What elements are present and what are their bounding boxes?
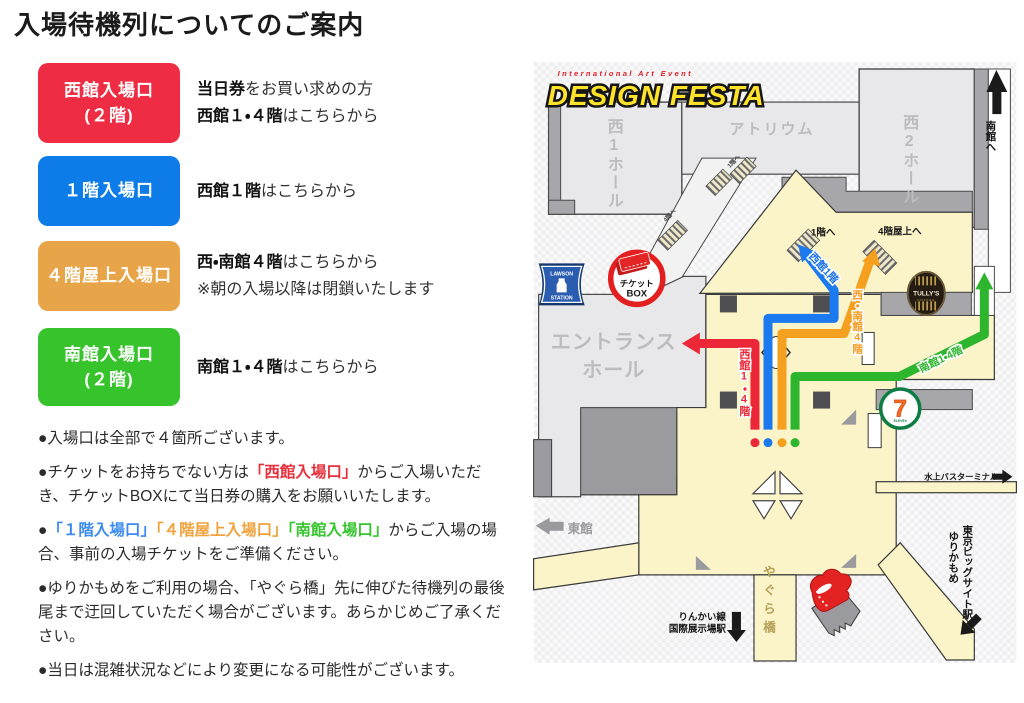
text-segment: 「南館入場口」 <box>288 522 389 539</box>
notes-list: ●入場口は全部で４箇所ございます。 ●チケットをお持ちでない方は「西館入場口」か… <box>38 427 508 683</box>
to-roof-label: 4階屋上へ <box>878 225 922 237</box>
text-segment: 西館１階 <box>197 183 261 200</box>
pillar <box>813 392 830 409</box>
note-item: ●当日は混雑状況などにより変更になる可能性がございます。 <box>38 659 508 683</box>
info-panel: 入場待機列についてのご案内 西館入場口 (２階) 当日券をお買い求めの方 西館１… <box>0 0 525 693</box>
entrance-row-1f: １階入場口 西館１階はこちらから <box>38 156 525 226</box>
rinkai-label-2: 国際展示場駅 <box>669 623 727 635</box>
yurikamome-label-1: ゆりかもめ <box>947 531 959 584</box>
door <box>862 332 874 364</box>
west1-hall-label: 西1ホール <box>605 118 624 210</box>
lawson-label-2: STATION <box>551 295 573 301</box>
door <box>868 414 881 448</box>
chip-label: 南館入場口 <box>64 342 154 368</box>
entrance-hall-label-2: ホール <box>582 360 645 382</box>
route-west-label: 西館1・4階 <box>738 348 752 417</box>
entrance-row-west: 西館入場口 (２階) 当日券をお買い求めの方 西館１・４階はこちらから <box>38 63 525 143</box>
tullys-icon: TULLY'S COFFEE <box>908 272 945 315</box>
text-segment: 「１階入場口」 <box>47 522 156 539</box>
text-segment: ● <box>38 522 47 539</box>
text-segment: 南館１・４階 <box>197 359 282 376</box>
roof-entrance-chip: ４階屋上入場口 <box>38 241 180 311</box>
rinkai-label-1: りんかい線 <box>678 611 726 623</box>
tullys-label: TULLY'S <box>913 290 940 297</box>
lawson-icon: LAWSON STATION <box>539 263 585 305</box>
chip-label: ４階屋上入場口 <box>46 263 172 289</box>
note-item: ●ゆりかもめをご利用の場合、「やぐら橋」先に伸びた待機列の最後尾まで迂回していた… <box>38 577 508 649</box>
ticket-box-label-2: BOX <box>626 288 647 299</box>
page-title: 入場待機列についてのご案内 <box>14 10 525 41</box>
first-floor-entrance-chip: １階入場口 <box>38 156 180 226</box>
gray-block <box>534 440 552 497</box>
atrium-label: アトリウム <box>729 121 814 138</box>
note-item: ●「１階入場口」「４階屋上入場口」「南館入場口」からご入場の場合、事前の入場チケ… <box>38 519 508 567</box>
to-south-label: 南館へ <box>984 119 996 151</box>
chip-label-sub: (２階) <box>84 367 133 393</box>
pillar <box>720 392 737 409</box>
west2-hall-label: 西2ホール <box>900 114 919 206</box>
text-segment: はこちらから <box>282 108 378 125</box>
seven-sub-label: ELEVEn <box>894 419 907 423</box>
pillar <box>720 295 737 312</box>
text-segment: ●当日は混雑状況などにより変更になる可能性がございます。 <box>38 662 464 679</box>
venue-map-svg: 1階へ 4階へ <box>533 62 1017 663</box>
lawson-label: LAWSON <box>550 271 573 277</box>
text-segment: ●チケットをお持ちでない方は <box>38 464 249 481</box>
east-hall-label: 東館 <box>568 521 594 536</box>
yurikamome-label-2: 東京ビッグサイト駅 <box>961 524 973 620</box>
note-item: ●入場口は全部で４箇所ございます。 <box>38 427 508 451</box>
south-entrance-desc: 南館１・４階はこちらから <box>197 354 378 381</box>
first-floor-entrance-desc: 西館１階はこちらから <box>197 178 357 205</box>
text-segment: ●ゆりかもめをご利用の場合、「やぐら橋」先に伸びた待機列の最後尾まで迂回していた… <box>38 580 505 645</box>
venue-map: 1階へ 4階へ <box>533 62 1017 663</box>
entrance-hall-label-1: エントランス <box>551 331 677 353</box>
text-segment: 西館１・４階 <box>197 108 282 125</box>
pillar <box>813 295 830 312</box>
seven-eleven-icon: 7 ELEVEn <box>881 389 920 428</box>
entrance-row-roof: ４階屋上入場口 西・南館４階はこちらから ※朝の入場以降は閉鎖いたします <box>38 241 525 311</box>
entrance-legend: 西館入場口 (２階) 当日券をお買い求めの方 西館１・４階はこちらから １階入場… <box>38 63 525 406</box>
route-roof-label: 西・南館4階 <box>851 289 863 354</box>
yagura-label: やぐら橋 <box>761 565 775 639</box>
ticket-box-icon: チケット BOX <box>611 252 663 305</box>
ticket-box-label-1: チケット <box>620 278 654 288</box>
roof-entrance-desc: 西・南館４階はこちらから ※朝の入場以降は閉鎖いたします <box>197 249 434 303</box>
text-segment: ●入場口は全部で４箇所ございます。 <box>38 430 294 447</box>
chip-label: １階入場口 <box>64 178 154 204</box>
text-segment: はこちらから <box>261 183 357 200</box>
text-segment: 西・南館４階 <box>197 254 282 271</box>
text-segment: 当日券 <box>197 81 245 98</box>
west-entrance-desc: 当日券をお買い求めの方 西館１・４階はこちらから <box>197 76 378 130</box>
text-segment: 「４階屋上入場口」 <box>156 522 288 539</box>
chip-label-sub: (２階) <box>84 103 133 129</box>
waterbus-road <box>876 482 1016 493</box>
logo-tagline: International Art Event <box>558 69 693 78</box>
tullys-sub-label: COFFEE <box>917 298 935 302</box>
text-segment: はこちらから <box>282 359 378 376</box>
to-1f-label: 1階へ <box>811 226 836 238</box>
waterbus-label: 水上バスターミナル <box>923 472 999 482</box>
south-entrance-chip: 南館入場口 (２階) <box>38 328 180 406</box>
text-segment: はこちらから <box>282 254 378 271</box>
text-segment: ※朝の入場以降は閉鎖いたします <box>197 281 434 298</box>
text-segment: をお買い求めの方 <box>245 81 373 98</box>
entrance-row-south: 南館入場口 (２階) 南館１・４階はこちらから <box>38 328 525 406</box>
note-item: ●チケットをお持ちでない方は「西館入場口」からご入場いただき、チケットBOXにて… <box>38 461 508 509</box>
west-entrance-chip: 西館入場口 (２階) <box>38 63 180 143</box>
text-segment: 「西館入場口」 <box>249 464 358 481</box>
logo-title: DESIGN FESTA <box>548 80 765 111</box>
chip-label: 西館入場口 <box>64 78 154 104</box>
south-gray-building <box>581 408 691 495</box>
